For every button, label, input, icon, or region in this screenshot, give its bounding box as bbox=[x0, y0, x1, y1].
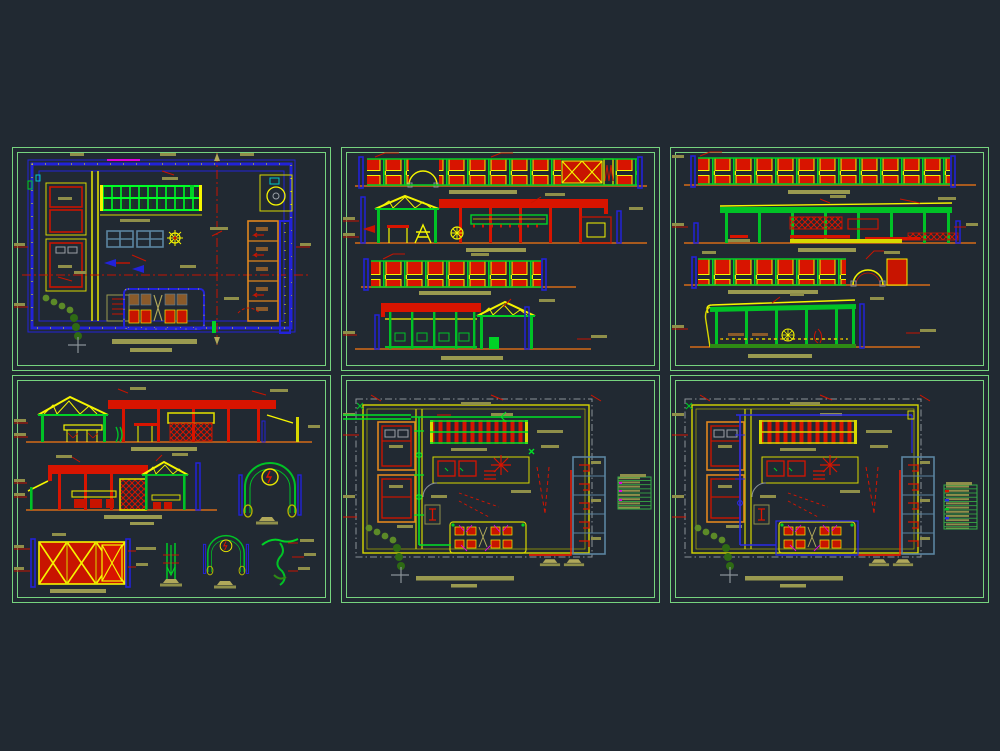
elevation-patio bbox=[343, 299, 607, 360]
elevation-fence-short bbox=[361, 253, 576, 295]
elevation-fence-arch bbox=[355, 153, 647, 194]
flow-arrows bbox=[104, 259, 144, 273]
arch-mound bbox=[256, 517, 278, 525]
sheet-border bbox=[671, 376, 989, 603]
sheet-border bbox=[342, 376, 660, 603]
sheet-sections-details bbox=[12, 375, 331, 603]
sheet-elevations-b bbox=[670, 147, 989, 371]
legend-table bbox=[618, 474, 651, 509]
gate-detail bbox=[14, 533, 148, 593]
equipment-box bbox=[260, 175, 292, 211]
section-one bbox=[14, 387, 320, 451]
elevation-lateral-section bbox=[672, 293, 936, 358]
legend-table bbox=[944, 482, 977, 529]
bench-block bbox=[124, 289, 204, 329]
sheet-installations-green bbox=[341, 375, 660, 603]
post-detail bbox=[146, 543, 182, 587]
section-two bbox=[14, 453, 217, 525]
plan-base bbox=[672, 395, 934, 588]
arch-detail-small bbox=[203, 536, 248, 589]
sun-fan-symbol bbox=[167, 230, 183, 246]
stair-detail bbox=[107, 295, 129, 321]
sheet-border bbox=[13, 148, 331, 371]
elevation-long-section bbox=[672, 195, 978, 252]
elevation-long-fence bbox=[672, 152, 976, 194]
corridor bbox=[92, 171, 98, 321]
plan-base bbox=[343, 395, 605, 588]
sheet-plan-general bbox=[12, 147, 331, 371]
drawing-canvas[interactable] bbox=[0, 0, 1000, 751]
elevation-main-section bbox=[343, 193, 647, 252]
sheet-elevations-a bbox=[341, 147, 660, 371]
title-bars bbox=[112, 339, 197, 352]
trees bbox=[43, 295, 88, 353]
sheet-installations-blue bbox=[670, 375, 989, 603]
green-door bbox=[212, 321, 216, 333]
skylight-grid bbox=[100, 185, 202, 215]
arch-detail-large bbox=[239, 463, 301, 517]
elevation-fence-with-arch bbox=[684, 251, 930, 294]
vine-detail bbox=[262, 539, 316, 585]
kitchen-windows bbox=[107, 231, 163, 247]
